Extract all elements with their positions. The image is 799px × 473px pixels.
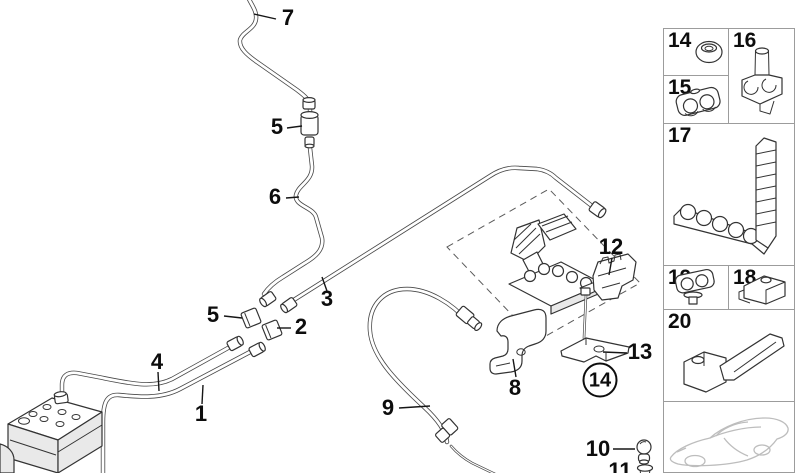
part-box-15[interactable]: 15	[664, 76, 728, 123]
part-box-18[interactable]: 18	[729, 266, 792, 309]
pipe-holder-clip-icon	[729, 29, 792, 123]
part-box-16[interactable]: 16	[729, 29, 792, 123]
multi-clip-rail-icon	[664, 124, 792, 265]
bracket-8	[490, 309, 546, 374]
callout-7[interactable]: 7	[282, 7, 294, 29]
callout-13[interactable]: 13	[628, 341, 652, 363]
pipe-union-2	[262, 320, 283, 341]
holder-bracket-icon	[664, 310, 792, 401]
brake-pipe-1	[103, 352, 250, 473]
callout-9[interactable]: 9	[382, 397, 394, 419]
callout-3[interactable]: 3	[321, 288, 333, 310]
cable-holder-12	[593, 254, 636, 300]
vehicle-location-box	[664, 402, 792, 470]
callout-5-upper[interactable]: 5	[271, 116, 283, 138]
bracket-13	[561, 338, 629, 362]
callout-8[interactable]: 8	[509, 377, 521, 399]
brake-hose-9	[370, 289, 497, 473]
part-detail-sidebar: 14 15 16	[663, 28, 795, 473]
callout-4[interactable]: 4	[151, 351, 163, 373]
part-box-19[interactable]: 19	[664, 266, 728, 309]
pipe-holder-assembly	[509, 214, 607, 314]
pipe-union-5-lower	[241, 308, 262, 329]
callout-5-lower[interactable]: 5	[207, 304, 219, 326]
part-box-14[interactable]: 14	[664, 29, 728, 75]
brake-pipe-parts-diagram-page: 7 5 6 3 5 2 4 1 9 12 13 8 14 10 11 14 15	[0, 0, 799, 473]
callout-11[interactable]: 11	[608, 460, 631, 473]
callout-2[interactable]: 2	[295, 316, 307, 338]
callout-12[interactable]: 12	[599, 236, 623, 258]
clamp-block-icon	[729, 266, 792, 309]
clamp-with-rivet-icon	[664, 266, 728, 309]
pipe-union-5-upper	[301, 98, 318, 148]
pipe-end-fittings	[226, 291, 297, 357]
grommet-nut-icon	[664, 29, 728, 75]
brake-pipe-7	[240, 0, 310, 113]
vehicle-outline-icon	[664, 402, 792, 470]
callout-1[interactable]: 1	[195, 403, 207, 425]
retaining-pin	[581, 288, 590, 338]
brake-pipe-6	[264, 148, 322, 294]
callout-14-circled[interactable]: 14	[583, 363, 618, 398]
abs-hydro-unit	[0, 391, 102, 473]
fastener-11-part	[638, 465, 653, 473]
callout-10[interactable]: 10	[586, 438, 610, 460]
pipe-clamp-icon	[664, 76, 728, 123]
part-box-17[interactable]: 17	[664, 124, 792, 265]
callout-6[interactable]: 6	[269, 186, 281, 208]
part-box-20[interactable]: 20	[664, 310, 792, 401]
fastener-10-part	[637, 440, 651, 464]
